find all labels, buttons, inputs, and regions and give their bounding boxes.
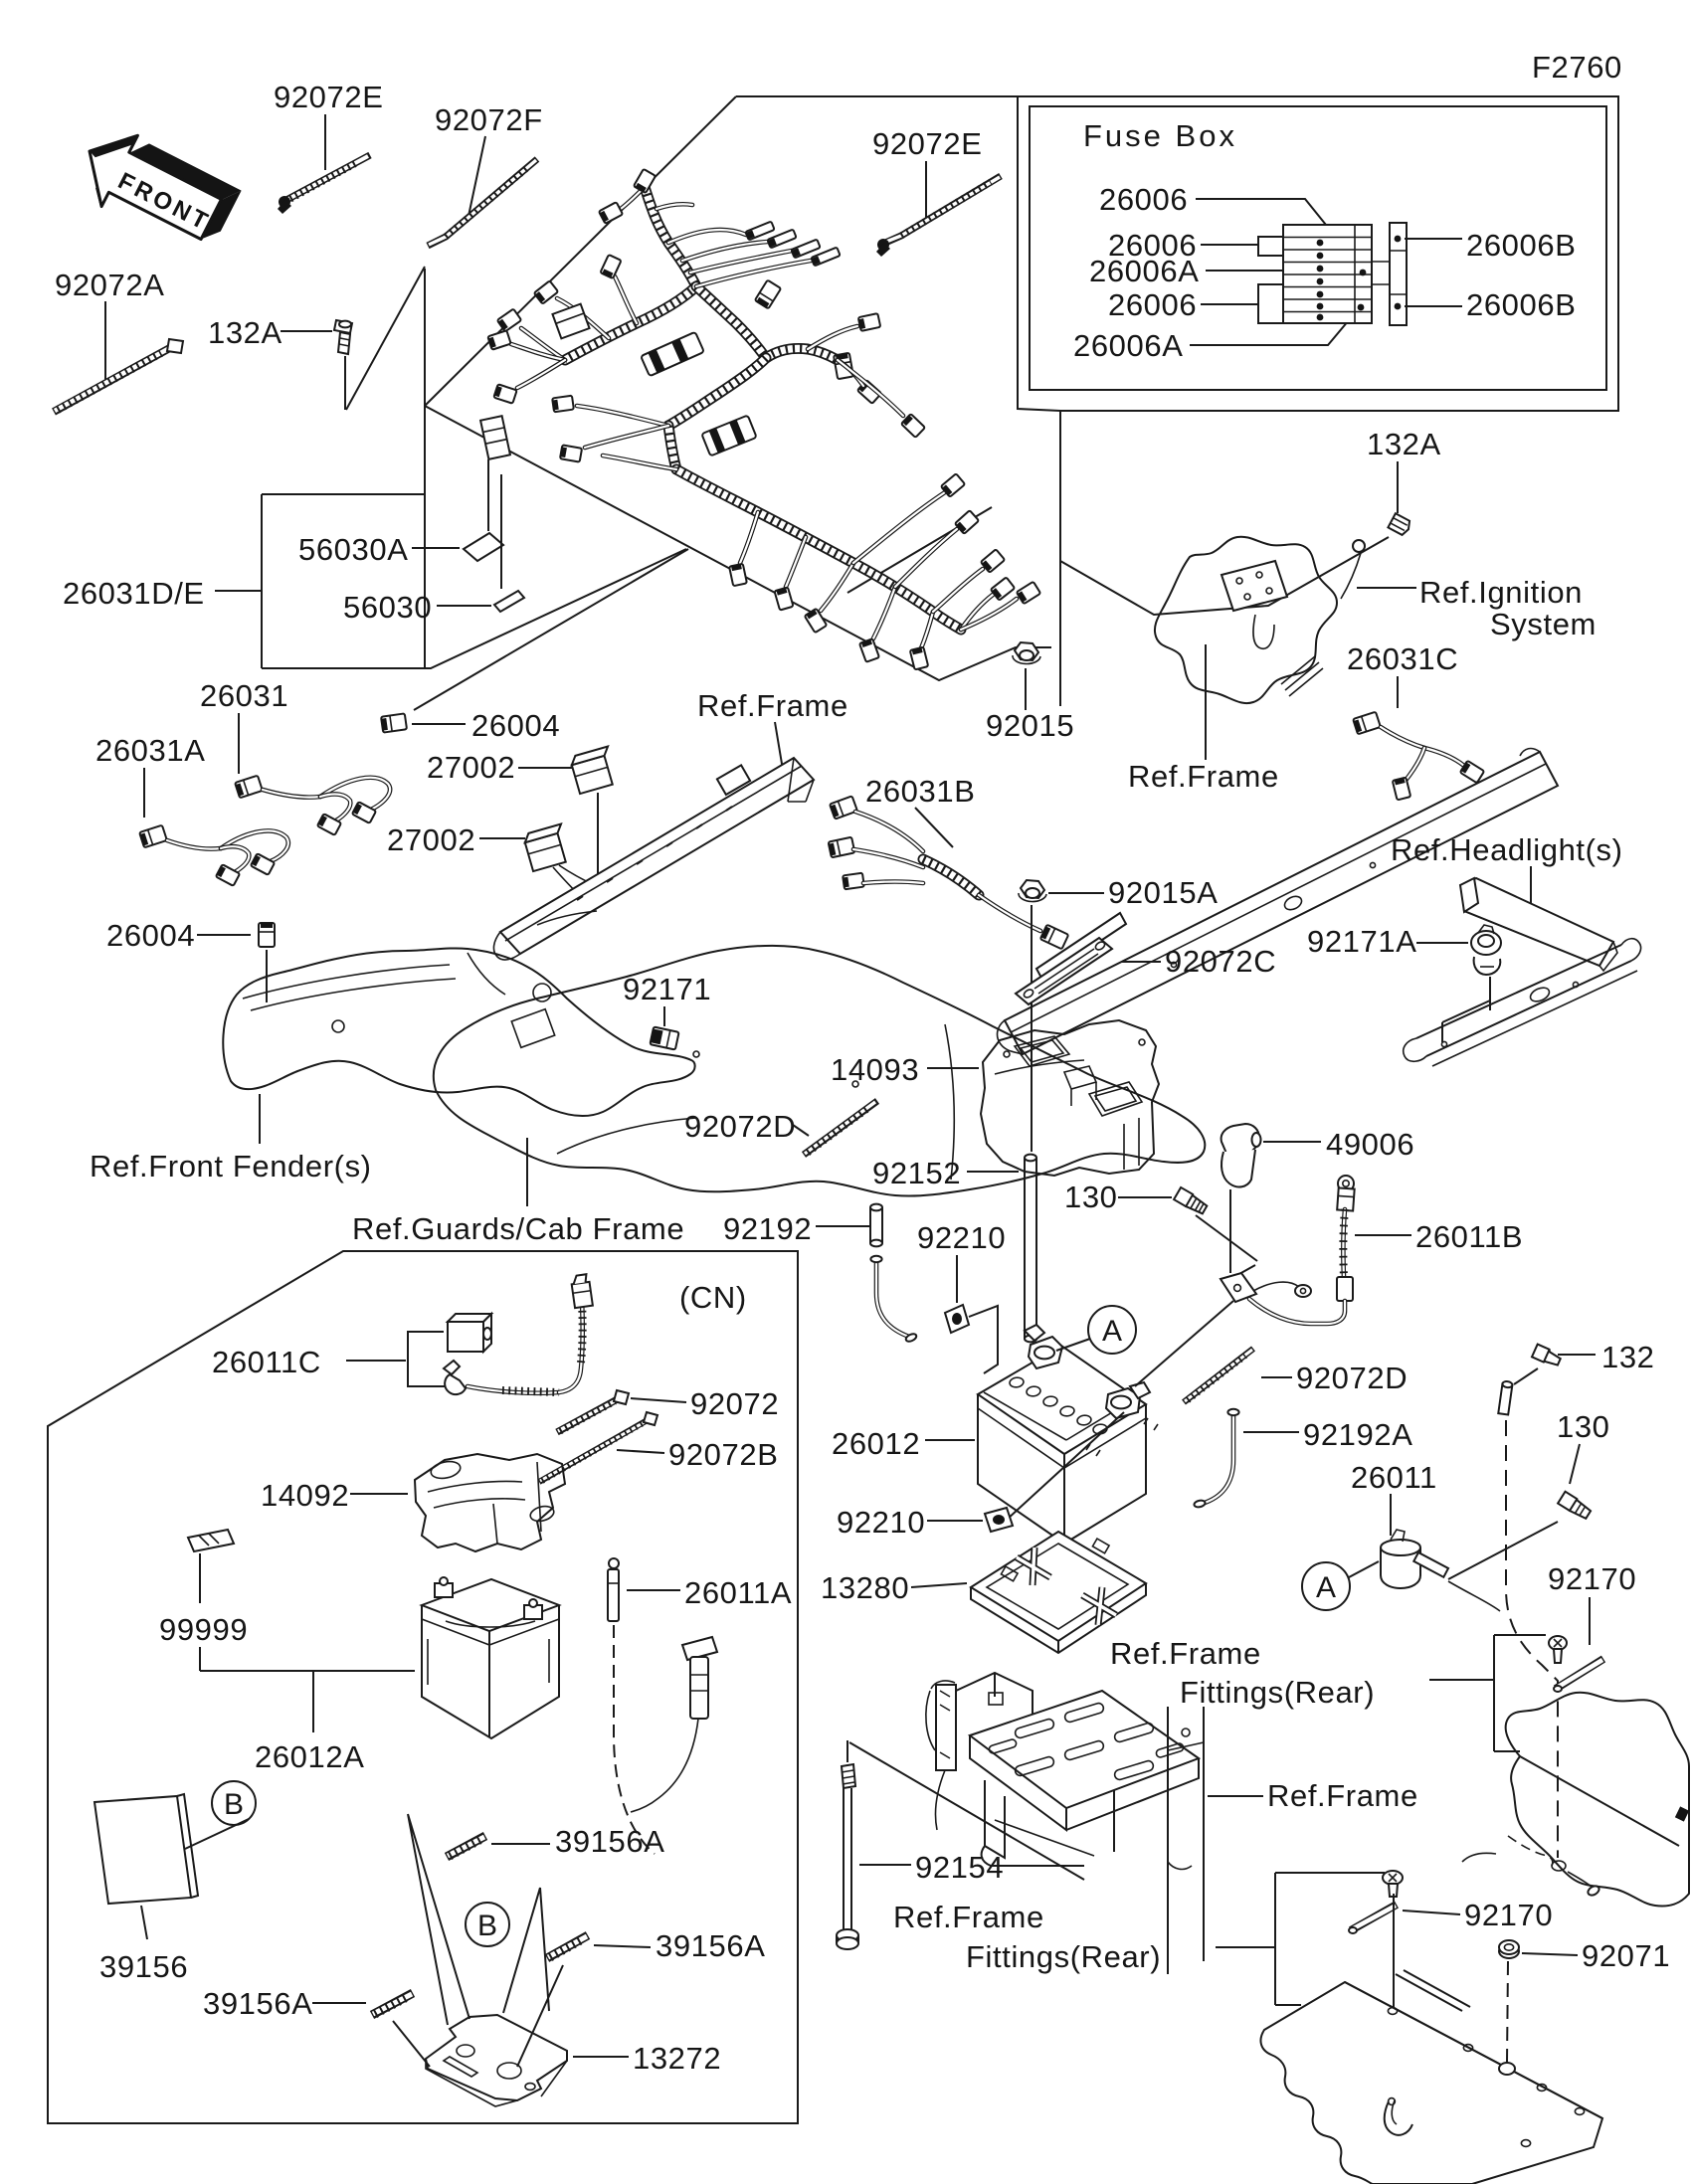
- svg-text:26006: 26006: [1099, 182, 1188, 217]
- svg-text:26006A: 26006A: [1073, 328, 1183, 363]
- svg-text:92192A: 92192A: [1303, 1417, 1412, 1452]
- svg-text:(CN): (CN): [679, 1280, 747, 1315]
- svg-text:39156A: 39156A: [203, 1986, 312, 2021]
- svg-text:Fuse Box: Fuse Box: [1083, 118, 1237, 153]
- svg-text:49006: 49006: [1326, 1127, 1414, 1162]
- svg-text:92192: 92192: [723, 1211, 812, 1246]
- svg-text:26031A: 26031A: [95, 733, 205, 768]
- svg-text:39156A: 39156A: [555, 1824, 664, 1859]
- svg-text:26006A: 26006A: [1089, 254, 1199, 288]
- svg-text:Ref.Front Fender(s): Ref.Front Fender(s): [90, 1149, 372, 1183]
- svg-text:26006B: 26006B: [1466, 287, 1576, 322]
- svg-text:92072A: 92072A: [55, 268, 164, 302]
- svg-text:B: B: [477, 1910, 497, 1942]
- svg-text:Ref.Frame: Ref.Frame: [1128, 759, 1279, 794]
- svg-text:26004: 26004: [471, 708, 560, 743]
- svg-text:27002: 27002: [427, 750, 515, 785]
- svg-text:26031: 26031: [200, 678, 288, 713]
- svg-text:26031D/E: 26031D/E: [63, 576, 205, 611]
- svg-text:92210: 92210: [837, 1505, 925, 1540]
- svg-text:Ref.Ignition: Ref.Ignition: [1419, 575, 1583, 610]
- svg-text:Ref.Frame: Ref.Frame: [1267, 1778, 1418, 1813]
- svg-text:92171: 92171: [623, 972, 711, 1006]
- svg-text:System: System: [1490, 607, 1597, 641]
- svg-text:26011B: 26011B: [1415, 1219, 1523, 1254]
- svg-text:26012A: 26012A: [255, 1739, 364, 1774]
- svg-text:92072E: 92072E: [872, 126, 982, 161]
- svg-text:26012: 26012: [832, 1426, 920, 1461]
- svg-text:56030A: 56030A: [298, 532, 408, 567]
- svg-text:26031C: 26031C: [1347, 641, 1458, 676]
- svg-text:Ref.Headlight(s): Ref.Headlight(s): [1391, 832, 1623, 867]
- svg-text:99999: 99999: [159, 1612, 248, 1647]
- svg-text:14093: 14093: [831, 1052, 919, 1087]
- svg-text:132A: 132A: [208, 315, 282, 350]
- svg-text:26006: 26006: [1108, 287, 1197, 322]
- svg-text:Fittings(Rear): Fittings(Rear): [966, 1939, 1161, 1974]
- svg-text:26011C: 26011C: [212, 1345, 321, 1379]
- svg-text:56030: 56030: [343, 590, 432, 625]
- svg-text:92170: 92170: [1464, 1898, 1553, 1932]
- svg-text:A: A: [1316, 1571, 1336, 1604]
- svg-text:Fittings(Rear): Fittings(Rear): [1180, 1675, 1375, 1710]
- svg-text:26011A: 26011A: [684, 1575, 792, 1610]
- svg-text:Ref.Frame: Ref.Frame: [697, 688, 848, 723]
- svg-text:Ref.Guards/Cab Frame: Ref.Guards/Cab Frame: [352, 1211, 684, 1246]
- svg-text:39156: 39156: [99, 1949, 188, 1984]
- svg-text:132: 132: [1601, 1340, 1655, 1374]
- svg-text:14092: 14092: [261, 1478, 349, 1513]
- svg-text:92072D: 92072D: [1296, 1361, 1408, 1395]
- svg-text:92152: 92152: [872, 1156, 961, 1190]
- svg-text:26004: 26004: [106, 918, 195, 953]
- svg-text:27002: 27002: [387, 822, 475, 857]
- svg-text:92072F: 92072F: [435, 102, 543, 137]
- svg-text:92210: 92210: [917, 1220, 1006, 1255]
- svg-text:Ref.Frame: Ref.Frame: [893, 1900, 1044, 1934]
- svg-text:92154: 92154: [915, 1850, 1004, 1885]
- svg-text:92015: 92015: [986, 708, 1074, 743]
- svg-text:92072B: 92072B: [668, 1437, 778, 1472]
- svg-text:26006B: 26006B: [1466, 228, 1576, 263]
- svg-text:Ref.Frame: Ref.Frame: [1110, 1636, 1261, 1671]
- svg-text:B: B: [224, 1788, 244, 1821]
- svg-text:F2760: F2760: [1532, 50, 1622, 85]
- svg-text:26011: 26011: [1351, 1460, 1437, 1495]
- svg-text:92071: 92071: [1582, 1938, 1670, 1973]
- svg-text:92171A: 92171A: [1307, 924, 1416, 959]
- svg-text:92072: 92072: [690, 1386, 779, 1421]
- svg-text:39156A: 39156A: [656, 1928, 765, 1963]
- svg-text:92072C: 92072C: [1165, 944, 1276, 979]
- svg-text:13272: 13272: [633, 2041, 721, 2076]
- svg-text:92015A: 92015A: [1108, 875, 1218, 910]
- svg-text:92072D: 92072D: [684, 1109, 796, 1144]
- svg-text:92072E: 92072E: [274, 80, 383, 114]
- svg-text:13280: 13280: [821, 1570, 909, 1605]
- svg-text:130: 130: [1064, 1180, 1118, 1214]
- svg-text:92170: 92170: [1548, 1561, 1636, 1596]
- svg-text:130: 130: [1557, 1409, 1610, 1444]
- svg-text:A: A: [1102, 1315, 1122, 1348]
- svg-text:132A: 132A: [1367, 427, 1441, 461]
- svg-text:26031B: 26031B: [865, 774, 975, 809]
